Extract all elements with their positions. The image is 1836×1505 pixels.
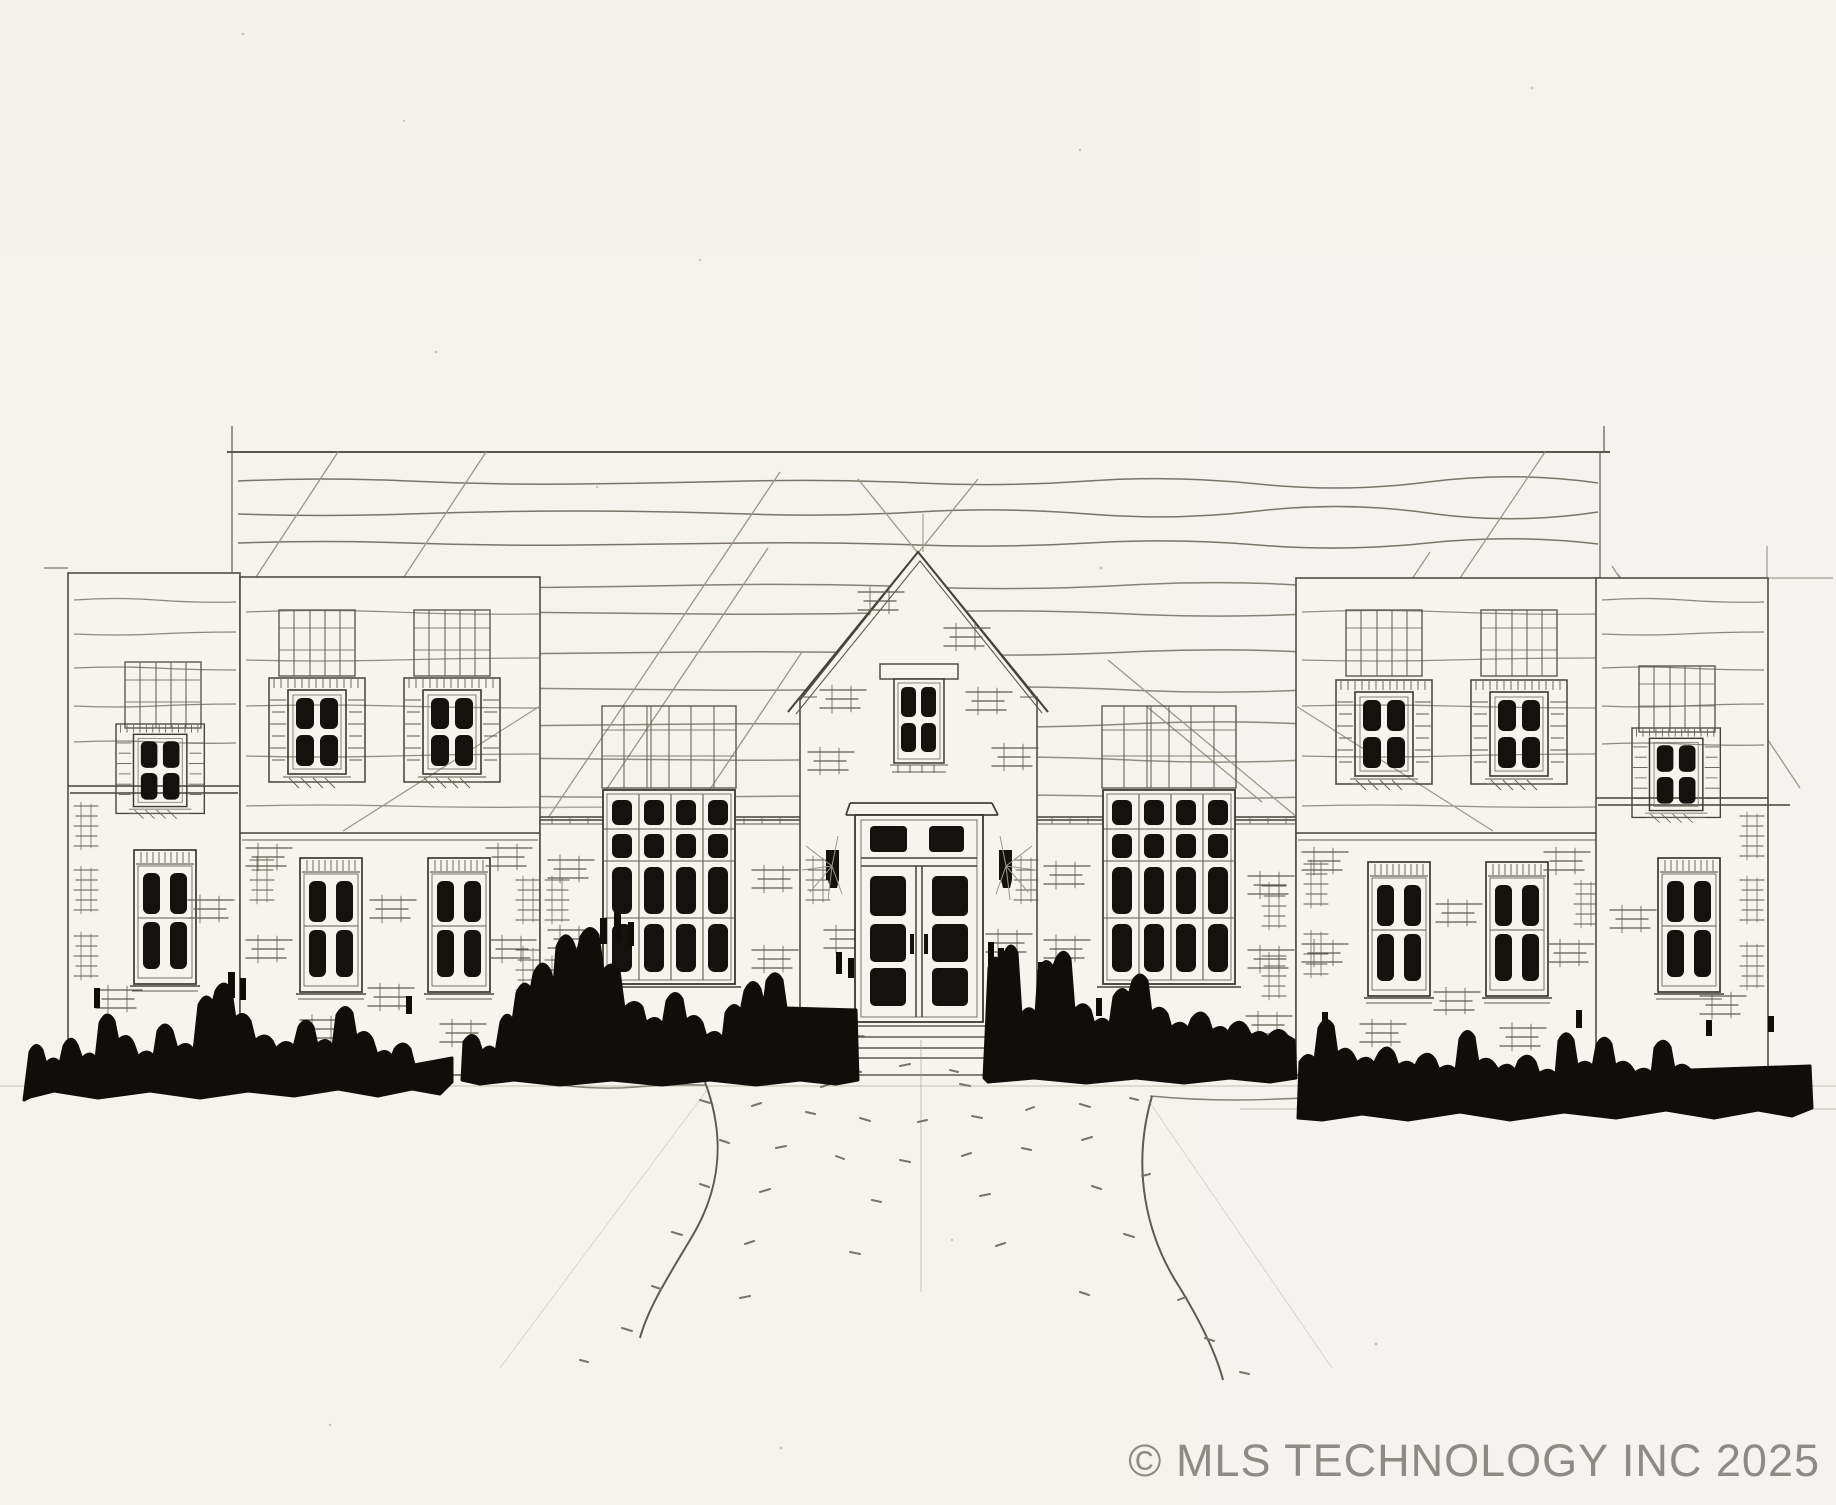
door-handle	[924, 934, 928, 954]
door-handle	[910, 934, 914, 954]
right-wing-lower-window	[1654, 858, 1724, 999]
right-block-window	[1482, 862, 1552, 1003]
right-block	[1296, 578, 1600, 1075]
entry-door	[846, 803, 998, 1022]
watermark: © MLS TECHNOLOGY INC 2025	[1128, 1435, 1820, 1487]
left-bay-window	[597, 790, 741, 987]
elevation-sketch	[0, 0, 1836, 1505]
sketch-page: © MLS TECHNOLOGY INC 2025	[0, 0, 1836, 1505]
left-block	[240, 577, 540, 1075]
left-wing-lower-window	[130, 850, 200, 991]
left-block-window	[296, 858, 366, 999]
right-block-window	[1364, 862, 1434, 1003]
left-block-window	[424, 858, 494, 999]
right-bay-window	[1097, 790, 1241, 987]
